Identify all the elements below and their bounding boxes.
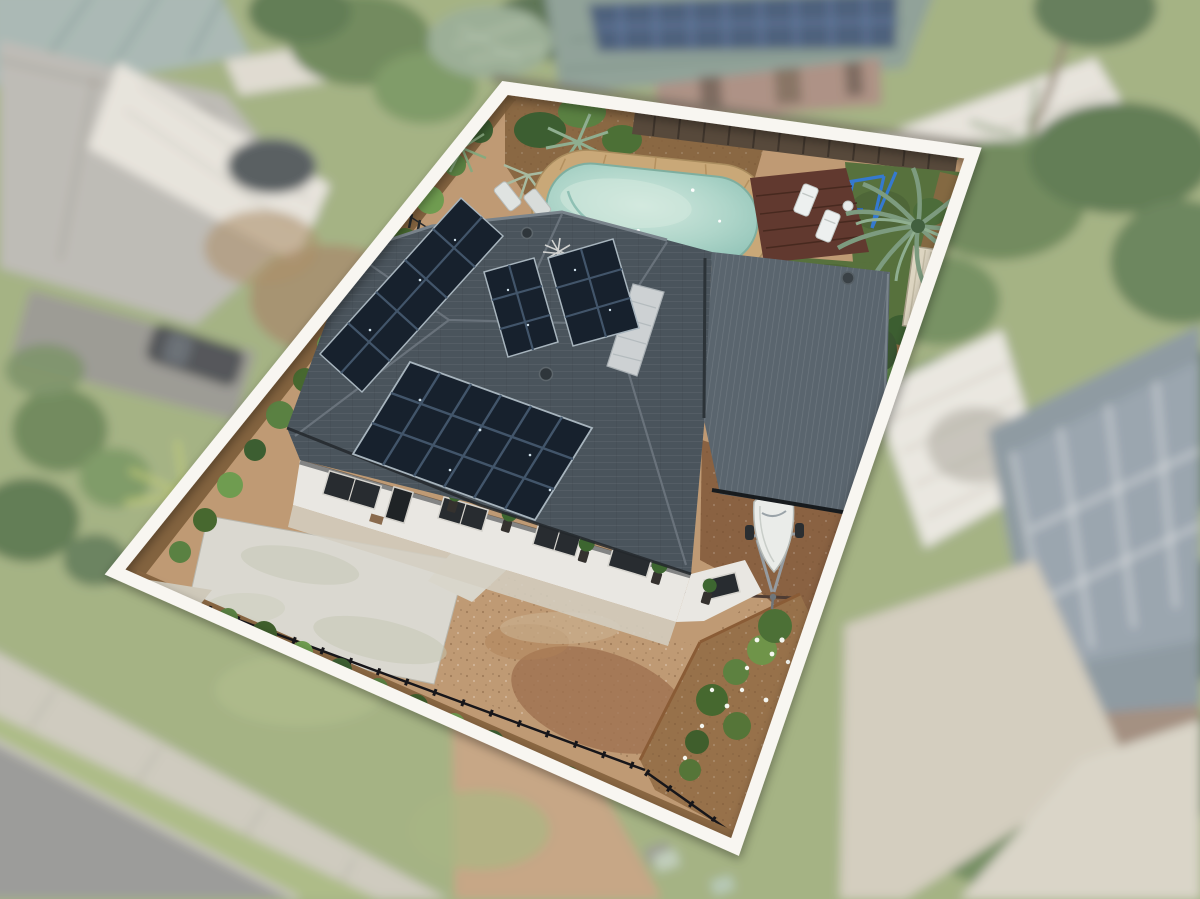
aerial-photo	[0, 0, 1200, 899]
roof-vent	[842, 272, 854, 284]
trailer-wheel	[795, 523, 804, 538]
roof-valley	[704, 258, 705, 418]
roof-vent	[540, 368, 553, 381]
aerial-photo-canvas	[0, 0, 1200, 899]
deck-table	[843, 201, 853, 211]
trailer-wheel	[745, 525, 754, 540]
roof-vent	[522, 228, 533, 239]
